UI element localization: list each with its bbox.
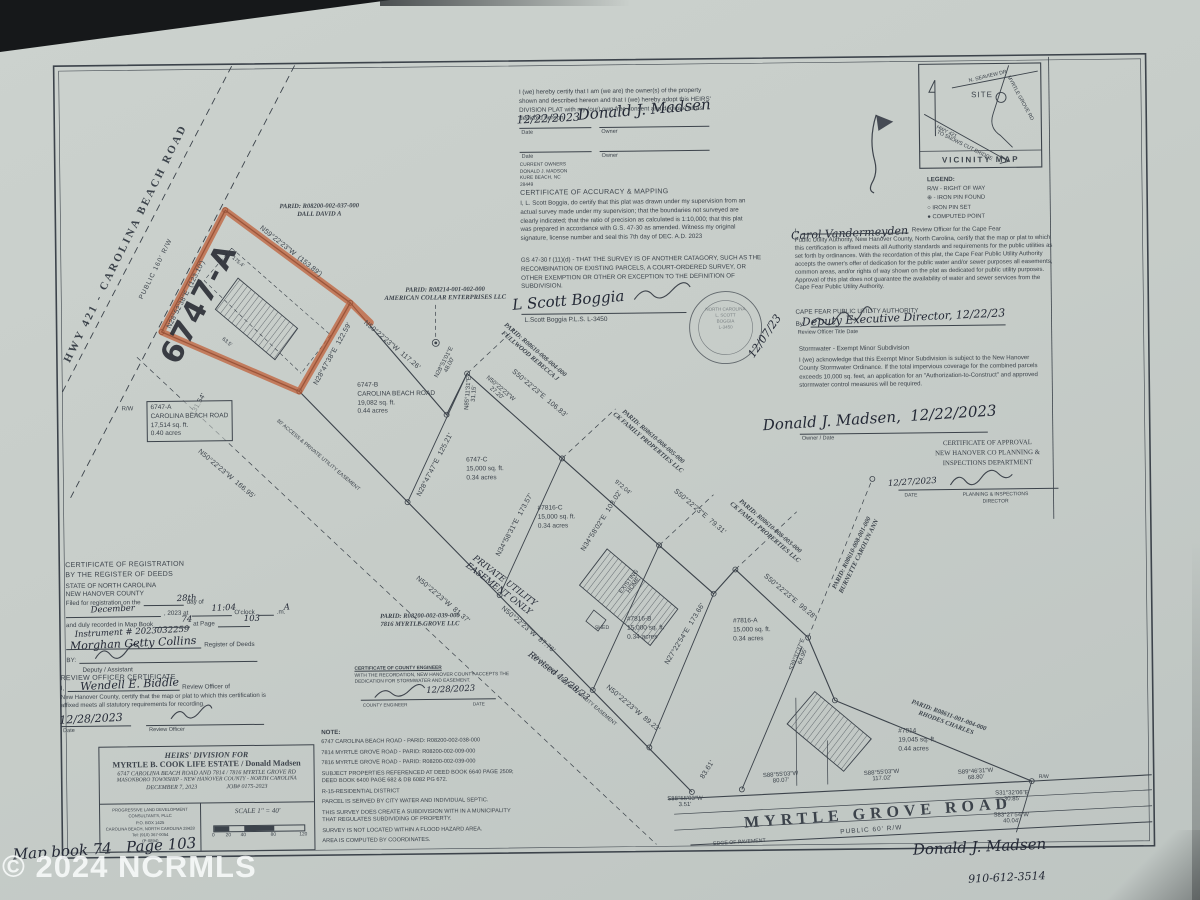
plat-label: PARID: R08200-002-037-000 DALL DAVID A [279, 202, 359, 220]
surveyor-credential: L.Scott Boggia P.L.S. L-3450 [524, 316, 607, 324]
plat-label: S88°55'03"W 3.51' [667, 796, 703, 808]
vicinity-map-caption: VICINITY MAP [942, 155, 1020, 165]
engineer-footer-right: DATE [473, 701, 485, 706]
reg-l3b: at Page [193, 620, 215, 627]
plat-date: DECEMBER 7, 2023 [146, 785, 197, 792]
note-item: R-15-RESIDENTIAL DISTRICT [322, 787, 518, 797]
engineer-title: CERTIFICATE OF COUNTY ENGINEER [354, 666, 441, 672]
parcel-label-7814: #7814 19,045 sq. ft. 0.44 acres [898, 727, 936, 754]
north-arrow-icon [929, 80, 936, 136]
approval-date-label: DATE [905, 492, 918, 498]
house-6747A [215, 277, 298, 360]
plat-label: PARID: R08214-001-002-000 AMERICAN COLLA… [384, 286, 506, 304]
vicinity-site-circle [996, 92, 1006, 102]
review-officer-title: REVIEW OFFICER CERTIFICATE [61, 674, 176, 682]
notes-heading: NOTE: [321, 729, 340, 736]
accuracy-gs-note: GS 47-30 f (11)(d) - THAT THE SURVEY IS … [521, 254, 766, 292]
pen-doodle [870, 115, 877, 193]
note-item: AREA IS COMPUTED BY COORDINATES. [322, 836, 518, 846]
approval-signature [950, 470, 1012, 485]
scale-ticks: 0204080120 [213, 802, 303, 843]
scale-tick: 80 [271, 833, 276, 838]
utility-post: Review Officer for the Cape Fear [912, 225, 1001, 233]
parcel-label-7816-C: #7816-C 15,000 sq. ft. 0.34 acres [538, 504, 576, 531]
review-pre: I, [61, 685, 65, 692]
notes-list: 6747 CAROLINA BEACH ROAD - PARID: R08200… [321, 737, 518, 849]
plat-label: S88°55'03"W 80.07' [763, 771, 799, 785]
road-corner-jog [1016, 781, 1033, 832]
legend-items: R/W - RIGHT OF WAY⊕ - IRON PIN FOUND○ IR… [927, 185, 986, 223]
note-item: 7816 MYRTLE GROVE ROAD - PARID: R08200-0… [322, 758, 518, 768]
engineer-text: WITH THE RECORDATION, NEW HANOVER COUNTY… [355, 672, 513, 687]
note-item: SURVEY IS NOT LOCATED WITHIN A FLOOD HAZ… [322, 826, 518, 836]
owner-label: Owner [601, 129, 617, 135]
title-block: HEIRS' DIVISION FOR MYRTLE B. COOK LIFE … [98, 744, 315, 852]
reg-blank-month [66, 609, 161, 618]
house-7814 [787, 691, 872, 772]
reg-blank-page [218, 619, 250, 627]
reg-l2b: O'clock [234, 609, 255, 616]
utility-authority-name: CAPE FEAR PUBLIC UTILITY AUTHORITY [795, 307, 918, 315]
note-item: THIS SURVEY DOES CREATE A SUBDIVISION WI… [322, 808, 518, 825]
registration-county: NEW HANOVER COUNTY [66, 590, 144, 598]
legend-title: LEGEND: [927, 176, 985, 184]
utility-by-label: By: [796, 321, 805, 328]
plat-title-line2: MYRTLE B. COOK LIFE ESTATE / Donald Mads… [99, 758, 313, 769]
title-block-heading: HEIRS' DIVISION FOR MYRTLE B. COOK LIFE … [99, 745, 314, 803]
plat-job-number: JOB# 0175-2023 [226, 784, 267, 790]
legend-item: ⊕ - IRON PIN FOUND [927, 194, 985, 204]
registration-state: STATE OF NORTH CAROLINA [65, 582, 156, 590]
review-officer-text: New Hanover County, certify that the map… [61, 692, 273, 711]
reg-blank-book [156, 620, 190, 628]
parcel-label-7816-A: #7816-A 15,000 sq. ft. 0.34 acres [733, 617, 771, 644]
plat-label: R/W [1039, 774, 1049, 780]
utility-pre: I, [794, 228, 797, 235]
current-owners-note: CURRENT OWNERS DONALD J. MADSON KURE BEA… [520, 162, 568, 189]
scanned-plat-document: HWY 421 - CAROLINA BEACH ROADPUBLIC 160'… [0, 0, 1200, 900]
reg-blank-register [66, 641, 201, 651]
reg-blank-time [191, 608, 231, 616]
stormwater-footer: Owner / Date [802, 435, 834, 441]
note-item: SUBJECT PROPERTIES REFERENCED AT DEED BO… [322, 769, 518, 786]
plat-label: R/W [122, 406, 134, 412]
pen-doodle-flag [876, 115, 893, 131]
scale-tick: 0 [212, 833, 215, 838]
scale-tick: 20 [226, 833, 231, 838]
reg-l1a: Filed for registration on the [66, 599, 141, 607]
approval-title: CERTIFICATE OF APPROVAL NEW HANOVER CO P… [895, 438, 1080, 470]
plat-label: PARID: R08200-002-039-000 7816 MYRTLE GR… [380, 612, 460, 630]
reg-blank-day [144, 598, 184, 606]
ncrmls-watermark: © 2024 NCRMLS [2, 849, 257, 885]
scale-tick: 40 [241, 833, 246, 838]
parcel-label-6747-B: 6747-B CAROLINA BEACH ROAD 19,082 sq. ft… [357, 381, 435, 417]
review-officer-label: Review Officer [149, 727, 185, 733]
accuracy-certificate-text: I, L. Scott Boggia, do certify that this… [520, 197, 752, 244]
plat-title-line4: MASONBORO TOWNSHIP - NEW HANOVER COUNTY … [100, 775, 314, 783]
owner-certificate: I (we) hereby certify that I am (we are)… [519, 87, 719, 124]
approval-director-label: PLANNING & INSPECTIONS DIRECTOR [945, 491, 1045, 506]
note-item: 7814 MYRTLE GROVE ROAD - PARID: R08200-0… [321, 748, 517, 758]
date-label2: Date [522, 154, 534, 160]
utility-footer: Review Officer Title Date [798, 329, 858, 336]
owner-label2: Owner [602, 153, 618, 159]
stormwater-title: Stormwater - Exempt Minor Subdivision [799, 344, 910, 352]
review-name-blank [67, 683, 179, 692]
legend: LEGEND: R/W - RIGHT OF WAY⊕ - IRON PIN F… [927, 176, 986, 223]
legend-item: ● COMPUTED POINT [927, 212, 985, 222]
engineer-footer-left: COUNTY ENGINEER [363, 702, 408, 708]
scale-cell: SCALE 1" = 40' 0204080120 [201, 802, 315, 850]
parcel-label-6747-A: 6747-A CAROLINA BEACH ROAD 17,514 sq. ft… [146, 400, 232, 442]
plat-label: SHED [595, 625, 609, 631]
note-item: PARCEL IS SERVED BY CITY WATER AND INDIV… [322, 797, 518, 807]
parcel-label-6747-C: 6747-C 15,000 sq. ft. 0.34 acres [466, 456, 504, 483]
reg-l2a: , 2023 at [164, 610, 189, 617]
utility-name-blank [801, 225, 909, 234]
reg-l3a: and duly recorded in Map Book [66, 621, 153, 629]
reg-by-label: BY: [66, 657, 76, 664]
scale-tick: 120 [299, 832, 307, 837]
plat-sheet: HWY 421 - CAROLINA BEACH ROADPUBLIC 160'… [0, 0, 1200, 900]
title-block-footer: PROGRESSIVE LAND DEVELOPMENT CONSULTANTS… [100, 801, 315, 851]
surveyor-seal-text: NORTH CAROLINA L. SCOTT BOGGIA L-3450 [689, 306, 761, 331]
plat-label: N85°11'31"E 31.15' [464, 376, 479, 410]
stormwater-text: I (we) acknowledge that this Exempt Mino… [799, 354, 1049, 390]
plat-label: S89°46'31"W 68.80' [958, 768, 994, 782]
review-date-label: Date [63, 728, 75, 734]
reg-deputy-label: Deputy / Assistant [82, 666, 132, 674]
parcel-label-7816-B: #7816-B 15,000 sq. ft. 0.34 acres [627, 615, 665, 642]
date-label: Date [521, 130, 533, 136]
surveyor-firm-info: PROGRESSIVE LAND DEVELOPMENT CONSULTANTS… [100, 804, 202, 852]
review-post: Review Officer of [182, 683, 230, 691]
vicinity-site-label: SITE [971, 90, 993, 99]
plat-title-line5: DECEMBER 7, 2023 JOB# 0175-2023 [100, 783, 314, 791]
reg-l2c: .m. [277, 609, 286, 616]
plat-label: S88°55'03"W 117.02' [864, 769, 900, 783]
utility-certificate-text: Public Utility Authority, New Hanover Co… [795, 235, 1054, 293]
registration-title: CERTIFICATE OF REGISTRATION BY THE REGIS… [65, 560, 184, 582]
registration-line1: Filed for registration on the day of [66, 598, 204, 608]
owner-certificate-text: I (we) hereby certify that I am (we are)… [519, 87, 711, 122]
note-item: 6747 CAROLINA BEACH ROAD - PARID: R08200… [321, 737, 517, 747]
reg-l1b: day of [187, 599, 204, 606]
reg-blank-ampm [258, 608, 274, 616]
reg-register-label: Register of Deeds [204, 641, 254, 649]
carolina-beach-road-rw-line2 [58, 66, 236, 394]
